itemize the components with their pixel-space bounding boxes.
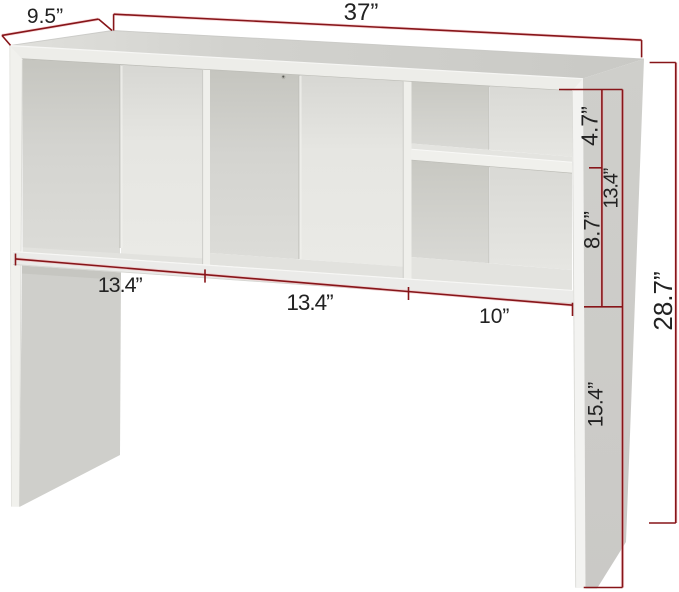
svg-text:13.4”: 13.4”	[286, 290, 333, 315]
svg-text:9.5”: 9.5”	[27, 5, 63, 28]
svg-text:10”: 10”	[479, 305, 509, 328]
svg-text:15.4”: 15.4”	[585, 382, 608, 427]
svg-text:13.4”: 13.4”	[601, 168, 623, 208]
svg-text:4.7”: 4.7”	[577, 106, 603, 146]
svg-text:28.7”: 28.7”	[648, 271, 678, 330]
svg-text:8.7”: 8.7”	[580, 211, 605, 249]
svg-text:13.4”: 13.4”	[98, 273, 143, 297]
svg-text:37”: 37”	[344, 0, 379, 26]
